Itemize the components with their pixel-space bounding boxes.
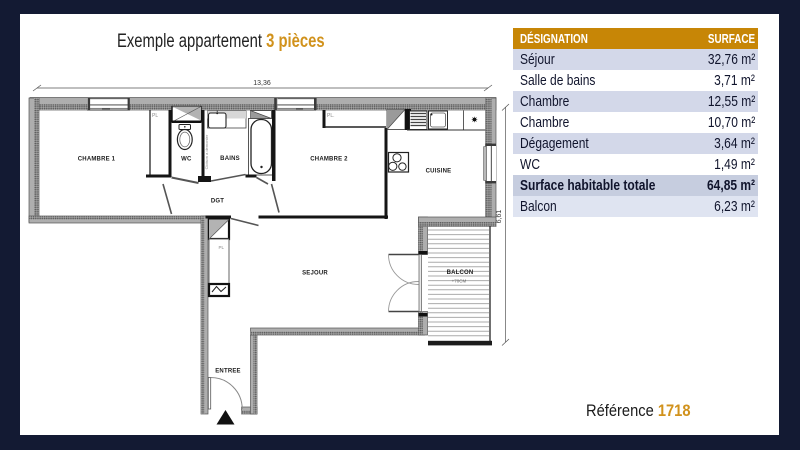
svg-text:PL.: PL.: [327, 113, 335, 119]
svg-text:+70CM: +70CM: [452, 279, 467, 284]
svg-text:DGT: DGT: [211, 198, 224, 204]
svg-text:CHAMBRE 1: CHAMBRE 1: [78, 157, 116, 163]
svg-text:13,36: 13,36: [253, 80, 271, 87]
svg-text:SEJOUR: SEJOUR: [302, 270, 328, 276]
svg-text:CHAMBRE 2: CHAMBRE 2: [310, 157, 348, 163]
svg-text:BALCON: BALCON: [447, 270, 474, 276]
svg-text:PL: PL: [152, 113, 158, 119]
svg-text:PL: PL: [219, 245, 225, 250]
svg-text:CUISINE: CUISINE: [426, 168, 452, 174]
svg-text:BAINS: BAINS: [220, 156, 240, 162]
svg-text:6,61: 6,61: [496, 210, 503, 224]
svg-text:WC: WC: [181, 157, 192, 163]
svg-text:Cloison a demonter: Cloison a demonter: [204, 134, 209, 169]
svg-text:ENTREE: ENTREE: [215, 368, 241, 374]
